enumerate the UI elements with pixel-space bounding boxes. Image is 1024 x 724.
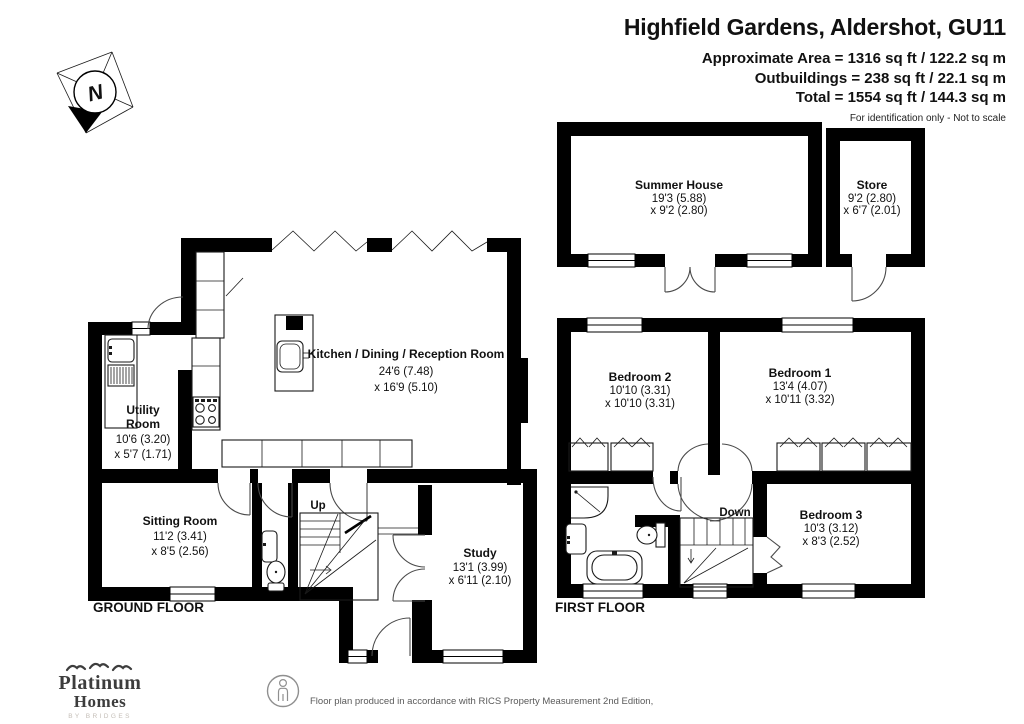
hall-door xyxy=(330,483,367,521)
study-name: Study xyxy=(463,546,497,560)
wc-toilet-icon xyxy=(267,561,285,591)
bedroom1-name: Bedroom 1 xyxy=(769,366,832,380)
hall-window xyxy=(348,650,367,663)
birds-icon xyxy=(65,659,135,673)
logo-line2: Homes xyxy=(38,693,162,710)
bedroom1-dim1: 13'4 (4.07) xyxy=(773,381,828,393)
summer-house-dim1: 19'3 (5.88) xyxy=(652,193,707,205)
ground-floor-plan: Up Kitchen / Dining / Reception Room 24'… xyxy=(88,231,537,663)
summer-house-name: Summer House xyxy=(635,178,723,192)
bathtub-icon xyxy=(587,551,642,584)
floorplan-page: Highfield Gardens, Aldershot, GU11 Appro… xyxy=(0,0,1024,724)
store-dim1: 9'2 (2.80) xyxy=(848,193,896,205)
utility-name-line2: Room xyxy=(126,417,160,431)
bedroom2-window xyxy=(587,318,642,332)
wall-opening-zigzag xyxy=(392,231,487,251)
kitchen-name: Kitchen / Dining / Reception Room xyxy=(308,347,505,361)
bedroom1-wardrobes xyxy=(777,438,911,471)
utility-window xyxy=(132,322,150,335)
disclaimer-line: Floor plan produced in accordance with R… xyxy=(310,696,830,709)
bedroom3-door xyxy=(767,537,782,573)
bedroom1-window xyxy=(782,318,853,332)
store-door xyxy=(852,267,886,301)
platinum-homes-logo: Platinum Homes BY BRIDGES xyxy=(38,659,162,720)
store-name: Store xyxy=(857,178,888,192)
stairs-up-label: Up xyxy=(310,500,325,512)
stove-icon xyxy=(193,397,219,427)
stairs-down-label: Down xyxy=(719,507,750,519)
sitting-room-window xyxy=(170,587,215,601)
study-french-doors xyxy=(393,535,425,601)
ground-floor-label: GROUND FLOOR xyxy=(93,600,204,615)
sitting-room-dim1: 11'2 (3.41) xyxy=(153,531,207,543)
bedroom2-dim1: 10'10 (3.31) xyxy=(609,385,670,397)
bedroom1-dim2: x 10'11 (3.32) xyxy=(765,394,834,406)
sitting-room-dim2: x 8'5 (2.56) xyxy=(151,546,208,558)
compass-rose-icon: N xyxy=(57,52,133,133)
wc-sink-icon xyxy=(262,531,277,562)
bedroom3-window xyxy=(802,584,855,598)
first-floor-plan: Down Bedroom 2 10'10 (3.31) x 10'10 (3.3… xyxy=(555,318,925,615)
bedroom3-dim1: 10'3 (3.12) xyxy=(804,523,859,535)
summer-house-window xyxy=(588,254,635,267)
study-dim1: 13'1 (3.99) xyxy=(453,562,508,574)
bedroom2-dim2: x 10'10 (3.31) xyxy=(605,398,675,410)
utility-dim1: 10'6 (3.20) xyxy=(116,434,171,446)
sitting-room-name: Sitting Room xyxy=(143,514,218,528)
person-circle-icon xyxy=(264,672,302,710)
bedroom2-name: Bedroom 2 xyxy=(609,370,672,384)
wall-opening-zigzag xyxy=(272,231,367,251)
summer-house-double-door xyxy=(665,267,715,292)
footer-disclaimer: Floor plan produced in accordance with R… xyxy=(310,670,830,724)
stairs-first-floor xyxy=(680,518,753,587)
logo-line1: Platinum xyxy=(38,673,162,693)
bathroom-sink-icon xyxy=(566,524,586,554)
chimney-breast xyxy=(507,358,528,423)
outbuildings-plan: Summer House 19'3 (5.88) x 9'2 (2.80) St… xyxy=(557,122,925,301)
utility-dim2: x 5'7 (1.71) xyxy=(114,449,171,461)
bedroom3-dim2: x 8'3 (2.52) xyxy=(802,536,859,548)
sitting-room-door xyxy=(218,483,250,515)
wc-door xyxy=(258,483,292,517)
floorplan-drawing: N xyxy=(0,0,1024,724)
first-floor-label: FIRST FLOOR xyxy=(555,600,645,615)
kitchen-dim1: 24'6 (7.48) xyxy=(379,366,434,378)
store-dim2: x 6'7 (2.01) xyxy=(843,205,900,217)
logo-tagline: BY BRIDGES xyxy=(38,713,162,720)
shower-icon xyxy=(571,487,608,518)
stairs-ground-floor xyxy=(300,513,378,600)
bedroom2-wardrobes xyxy=(569,438,653,471)
summer-house-window xyxy=(747,254,792,267)
bedroom3-name: Bedroom 3 xyxy=(800,508,863,522)
landing-window xyxy=(693,584,727,598)
kitchen-dim2: x 16'9 (5.10) xyxy=(374,382,438,394)
study-window xyxy=(443,650,503,663)
utility-name-line1: Utility xyxy=(126,403,160,417)
study-dim2: x 6'11 (2.10) xyxy=(449,575,512,587)
bathroom-window xyxy=(583,584,643,598)
summer-house-dim2: x 9'2 (2.80) xyxy=(650,205,707,217)
